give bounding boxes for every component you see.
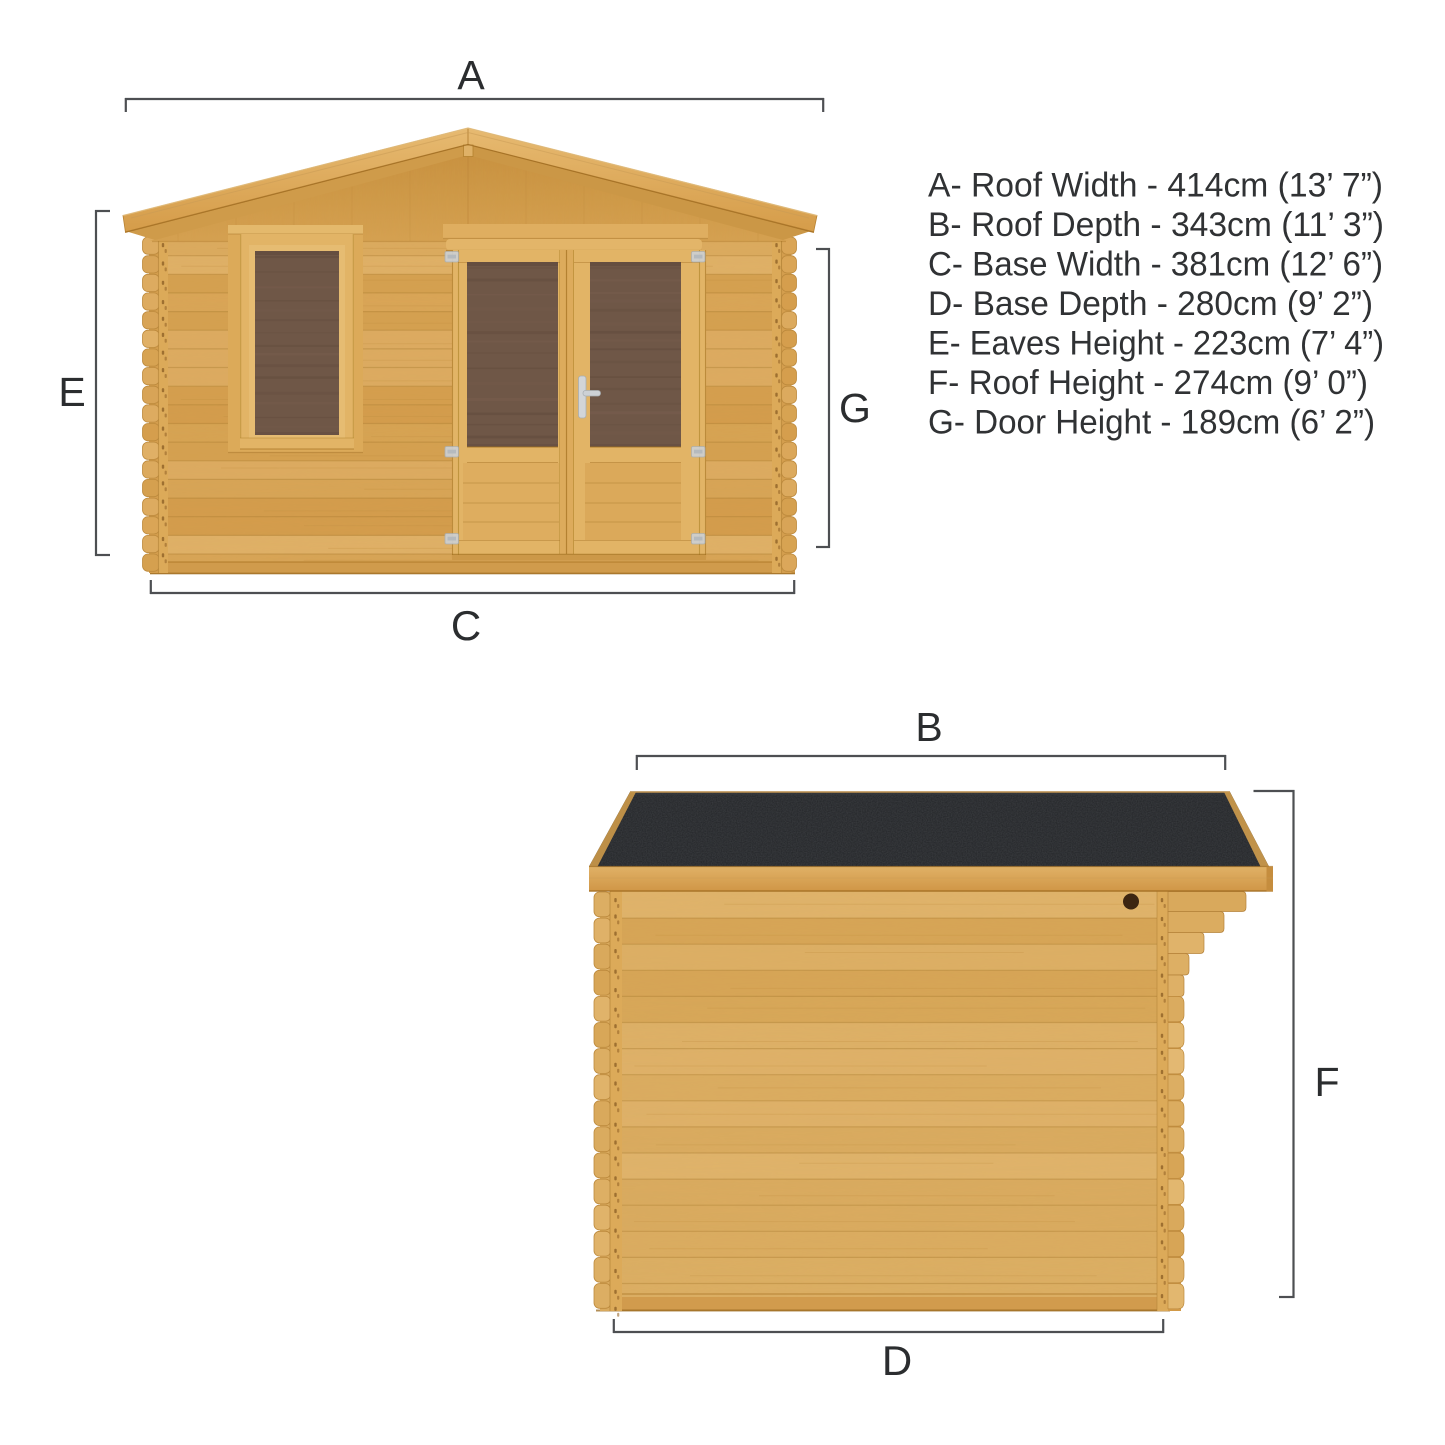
svg-text:G- Door Height - 189cm (6’ 2”): G- Door Height - 189cm (6’ 2”) [928,404,1375,442]
svg-text:A: A [457,52,485,98]
svg-text:D: D [882,1337,912,1384]
svg-text:G: G [839,385,871,431]
svg-text:F: F [1314,1059,1339,1105]
svg-text:E- Eaves Height - 223cm (7’ 4”: E- Eaves Height - 223cm (7’ 4”) [928,325,1384,363]
svg-text:C: C [451,602,481,649]
svg-text:F- Roof Height - 274cm (9’ 0”): F- Roof Height - 274cm (9’ 0”) [928,364,1368,402]
svg-text:A- Roof Width - 414cm (13’ 7”): A- Roof Width - 414cm (13’ 7”) [928,167,1383,205]
svg-text:E: E [58,369,85,415]
svg-text:B- Roof Depth - 343cm (11’ 3”): B- Roof Depth - 343cm (11’ 3”) [928,206,1384,244]
svg-text:D- Base Depth - 280cm (9’ 2”): D- Base Depth - 280cm (9’ 2”) [928,285,1373,323]
svg-text:C- Base Width - 381cm (12’ 6”): C- Base Width - 381cm (12’ 6”) [928,246,1383,284]
svg-text:B: B [915,704,942,750]
